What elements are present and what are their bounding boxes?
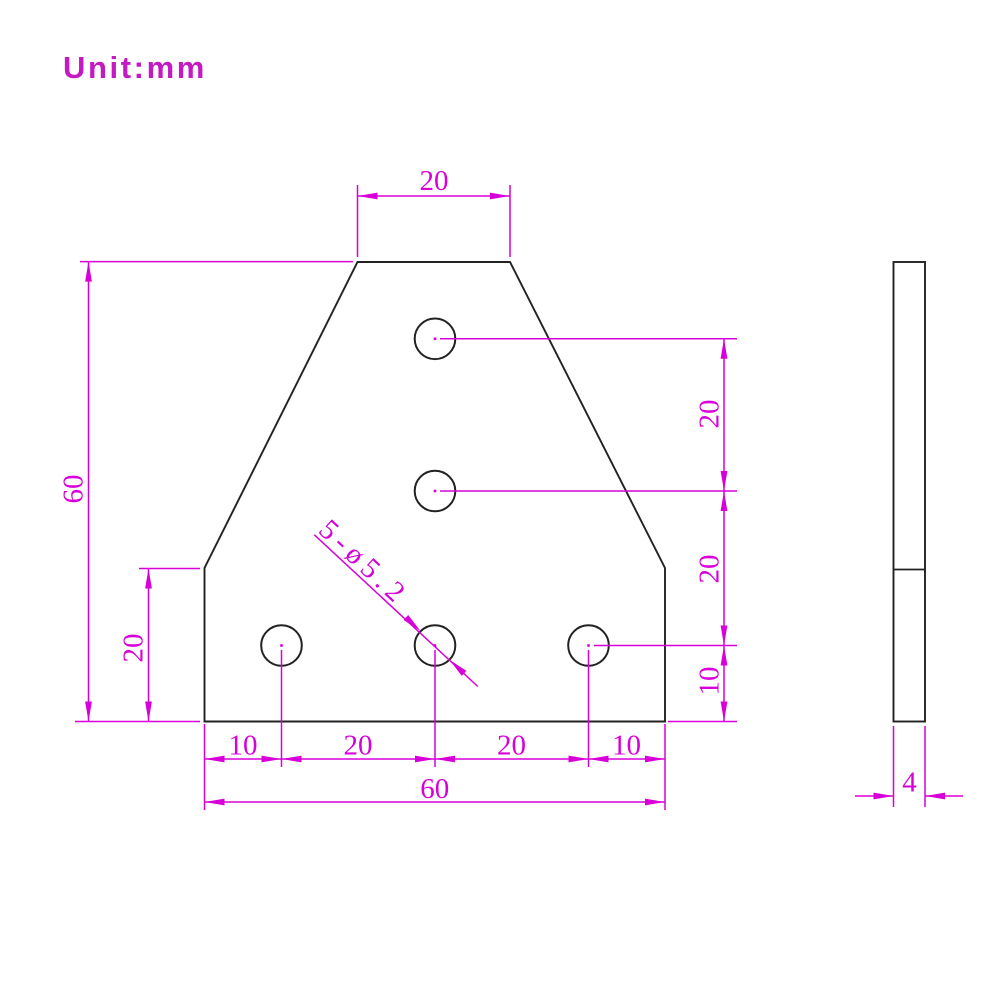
svg-text:10: 10	[229, 730, 258, 762]
svg-text:60: 60	[420, 773, 449, 805]
svg-text:4: 4	[902, 767, 917, 799]
svg-text:20: 20	[497, 730, 526, 762]
svg-text:10: 10	[612, 730, 641, 762]
svg-text:20: 20	[344, 730, 373, 762]
svg-text:Unit:mm: Unit:mm	[63, 50, 207, 85]
svg-text:20: 20	[694, 400, 726, 429]
svg-text:20: 20	[118, 634, 150, 663]
svg-text:60: 60	[58, 475, 90, 504]
svg-text:20: 20	[694, 555, 726, 584]
svg-text:10: 10	[694, 667, 726, 696]
svg-text:20: 20	[420, 165, 449, 197]
